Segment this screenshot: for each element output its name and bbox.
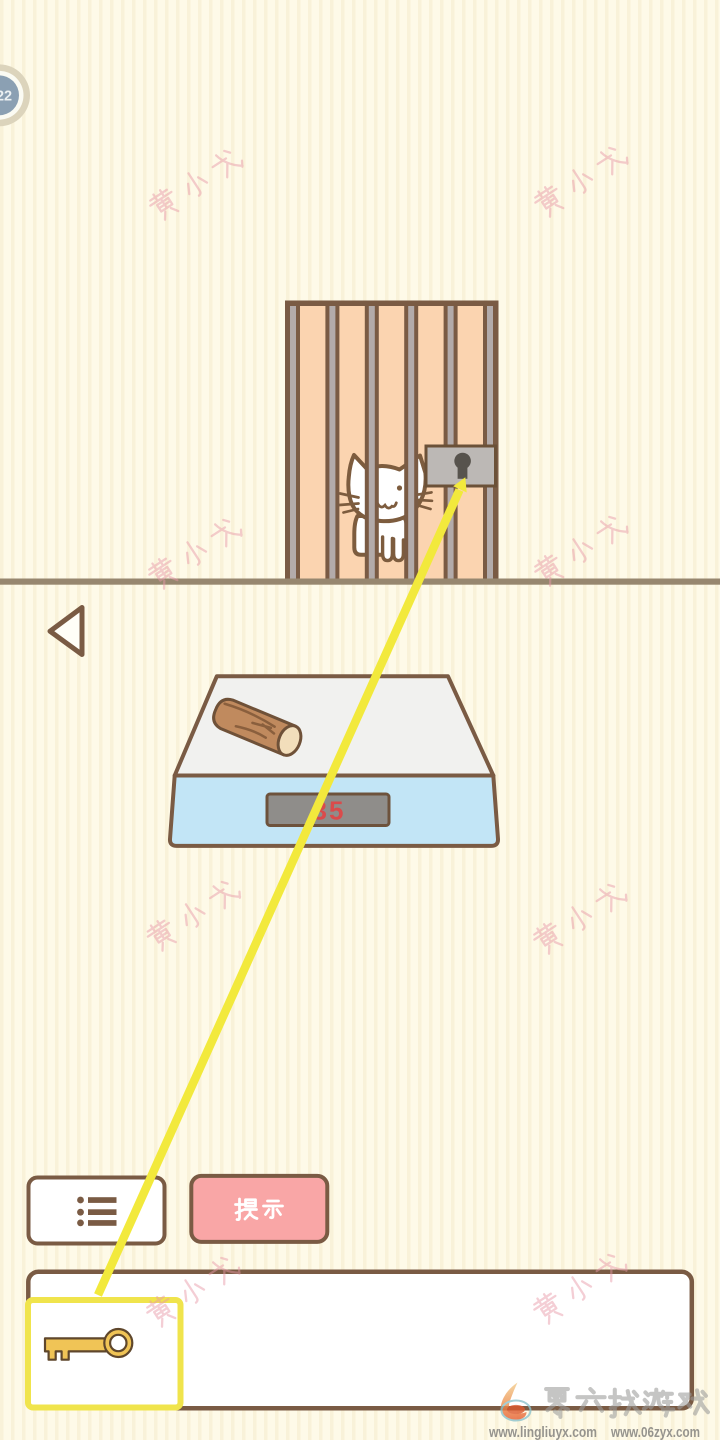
svg-text:22: 22 <box>0 89 12 105</box>
svg-text:www.lingliuyx.com: www.lingliuyx.com <box>488 1424 597 1440</box>
svg-text:www.06zyx.com: www.06zyx.com <box>610 1424 700 1440</box>
